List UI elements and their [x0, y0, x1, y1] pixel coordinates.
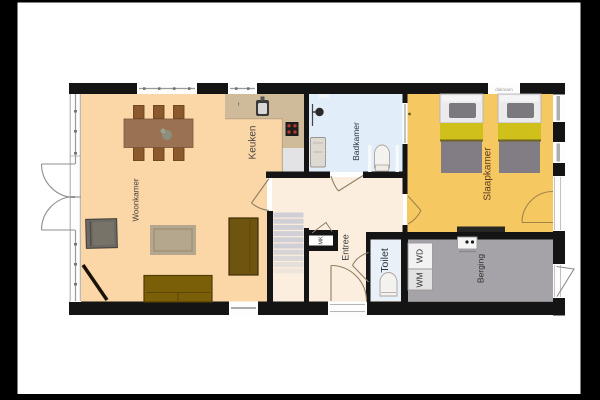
svg-text:Entree: Entree — [341, 234, 351, 261]
svg-text:WD: WD — [415, 249, 425, 263]
svg-text:Badkamer: Badkamer — [351, 122, 361, 161]
svg-text:Woonkamer: Woonkamer — [132, 178, 141, 221]
svg-text:Keuken: Keuken — [248, 126, 259, 160]
svg-text:Toilet: Toilet — [379, 248, 391, 273]
svg-text:MK: MK — [319, 236, 325, 245]
svg-text:dakraam: dakraam — [495, 87, 513, 92]
svg-text:Slaapkamer: Slaapkamer — [483, 147, 494, 201]
svg-text:WM: WM — [415, 272, 425, 287]
svg-text:Berging: Berging — [476, 254, 486, 284]
